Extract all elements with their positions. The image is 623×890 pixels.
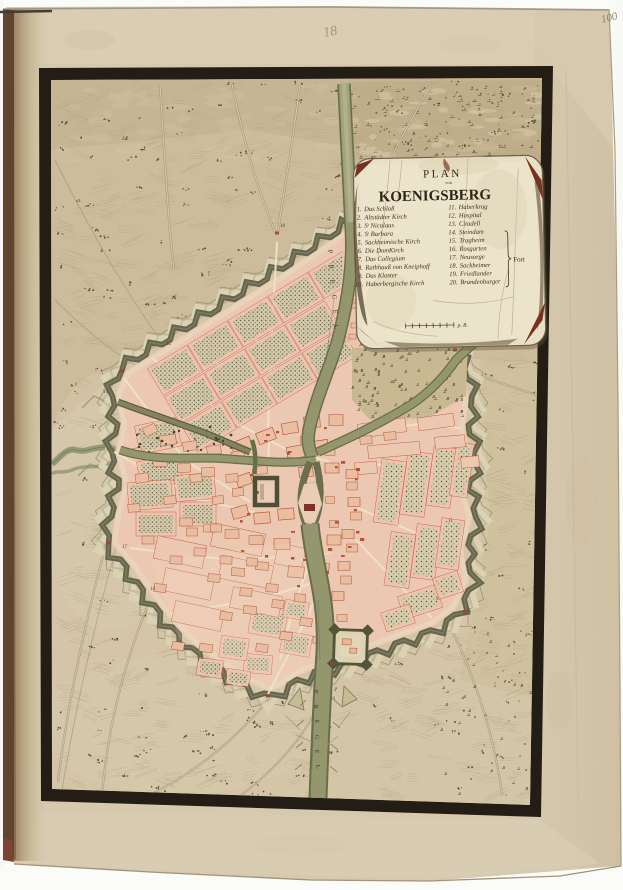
svg-text:Citadell: Citadell [459,220,481,227]
svg-text:Sackheimische Kirch: Sackheimische Kirch [365,238,421,246]
svg-text:17.: 17. [449,254,458,261]
svg-text:Friedlander: Friedlander [459,270,492,278]
svg-text:18.: 18. [449,263,458,270]
svg-text:Sᵗ Nicolaus: Sᵗ Nicolaus [364,222,394,230]
svg-text:6.: 6. [357,248,362,255]
svg-text:17: 17 [122,545,128,550]
svg-text:13.: 13. [448,221,457,228]
svg-text:12.: 12. [448,213,457,220]
svg-text:Sᵗ Barbara: Sᵗ Barbara [365,231,394,239]
svg-text:4.: 4. [357,231,362,238]
svg-text:Steindam: Steindam [459,229,484,237]
svg-text:Fort: Fort [513,255,525,263]
svg-text:PLAN: PLAN [423,168,462,181]
svg-text:Haberkrug: Haberkrug [458,203,489,211]
svg-text:16.: 16. [449,246,458,253]
svg-text:Das Kloster: Das Kloster [364,272,397,280]
svg-text:3.: 3. [356,223,362,230]
svg-text:Das Collegium: Das Collegium [364,255,405,263]
svg-text:11: 11 [448,519,453,524]
svg-text:10.: 10. [355,281,364,288]
svg-text:15: 15 [466,609,472,614]
svg-text:Tragheim: Tragheim [459,237,485,245]
svg-text:19.: 19. [449,271,458,278]
svg-text:20.: 20. [449,279,458,286]
svg-text:Rosgarten: Rosgarten [458,245,487,253]
svg-text:11.: 11. [448,204,456,211]
svg-text:9.: 9. [358,273,363,280]
svg-text:Die DomKirch: Die DomKirch [364,247,405,255]
svg-text:18: 18 [322,24,338,41]
svg-text:Rathhauß von Kneiphoff: Rathhauß von Kneiphoff [364,263,431,271]
svg-text:Das Schloß: Das Schloß [363,205,395,213]
svg-text:5.: 5. [357,240,362,247]
svg-text:14.: 14. [448,229,457,236]
svg-text:Brandenburger: Brandenburger [460,278,501,286]
svg-text:Haberbergische Kirch: Haberbergische Kirch [365,280,425,288]
svg-text:12: 12 [166,342,172,347]
svg-text:18: 18 [280,224,286,229]
svg-text:15.: 15. [448,238,457,245]
svg-text:16: 16 [330,697,336,702]
svg-text:14: 14 [150,587,156,592]
svg-text:1.: 1. [357,206,362,213]
svg-text:Hospital: Hospital [458,212,482,219]
svg-text:10: 10 [103,390,109,395]
svg-text:2.: 2. [357,215,362,222]
svg-text:Sackheimer: Sackheimer [460,262,491,270]
svg-text:p. R.: p. R. [457,323,468,329]
svg-text:7.: 7. [358,256,363,263]
svg-text:R: R [312,705,318,709]
svg-text:8.: 8. [358,265,363,272]
svg-text:KOENIGSBERG: KOENIGSBERG [378,187,491,205]
svg-text:von: von [445,180,453,185]
svg-text:Neusorge: Neusorge [459,254,485,262]
svg-text:Altstädter Kirch: Altstädter Kirch [363,214,407,222]
